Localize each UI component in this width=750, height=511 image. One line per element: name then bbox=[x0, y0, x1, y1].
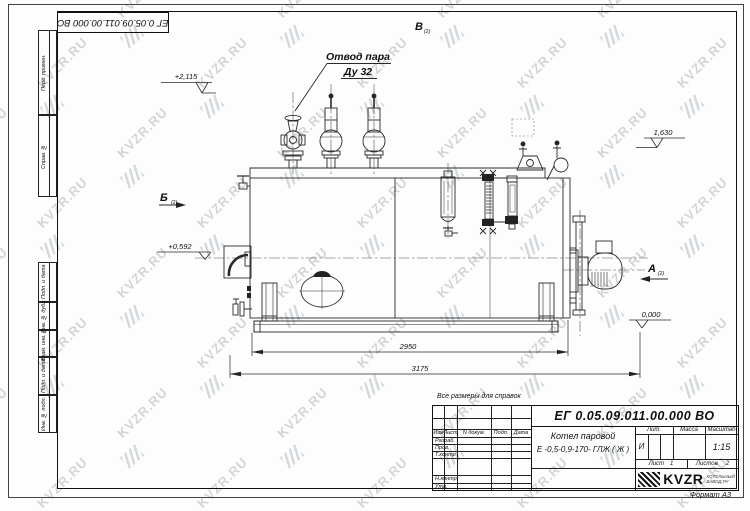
tb-header-date: Дата bbox=[511, 429, 531, 437]
tb-line bbox=[531, 468, 635, 469]
stamp-doc-number: ЕГ 0.05.09.011.00.000 ВО bbox=[57, 17, 168, 28]
tb-line bbox=[433, 418, 531, 419]
top-left-stamp: ЕГ 0.05.09.011.00.000 ВО bbox=[57, 12, 169, 33]
tb-sheets-value: 2 bbox=[726, 461, 729, 467]
margin-cell-podp-data-1: Подп. и дата bbox=[38, 262, 57, 302]
company-logo: KVZR КОТЕЛЬНЫЙ ЗАВОД.РУ bbox=[635, 468, 738, 490]
kvzr-hatch-icon bbox=[638, 472, 660, 487]
margin-label: Инв. № подл. bbox=[39, 396, 50, 432]
margin-label: Взам. инв. № bbox=[39, 331, 50, 356]
tb-lit-header: Лит. bbox=[635, 426, 673, 434]
tb-sheets: Листов 2 bbox=[687, 459, 738, 468]
tb-line bbox=[648, 434, 649, 459]
margin-label: Справ. № bbox=[39, 116, 50, 196]
tb-scale-value: 1:15 bbox=[705, 434, 738, 459]
tb-line bbox=[457, 406, 458, 490]
tb-row-ncontrol: Н.контр bbox=[433, 475, 457, 483]
tb-mass-header: Масса bbox=[673, 426, 705, 434]
margin-label: Подп. и дата bbox=[39, 358, 50, 394]
tb-header-sign: Подп. bbox=[491, 429, 511, 437]
margin-cell-perv-primen: Перв. примен. bbox=[38, 30, 57, 115]
kvzr-logo-subtext-line2: ЗАВОД.РУ bbox=[706, 479, 734, 484]
tb-sheet-value: 1 bbox=[670, 461, 673, 467]
tb-sheets-label: Листов bbox=[696, 461, 718, 467]
margin-cell-inv-podl: Инв. № подл. bbox=[38, 395, 57, 433]
tb-line bbox=[491, 406, 492, 490]
reference-note: Все размеры для справок bbox=[437, 393, 521, 400]
tb-row-developed: Разраб. bbox=[433, 437, 457, 444]
kvzr-logo-subtext: КОТЕЛЬНЫЙ ЗАВОД.РУ bbox=[706, 474, 734, 484]
margin-label: Подп. и дата bbox=[39, 263, 50, 301]
tb-header-list: Лист bbox=[444, 429, 457, 437]
tb-line bbox=[511, 406, 512, 490]
tb-row-approved: Утв. bbox=[433, 483, 457, 490]
tb-scale-header: Масштаб bbox=[705, 426, 738, 434]
tb-header-izm: Изм bbox=[433, 429, 444, 437]
tb-sheet: Лист 1 bbox=[635, 459, 687, 468]
tb-row-tcontrol: Т.контр bbox=[433, 451, 457, 458]
title-block: Изм Лист N докум. Подп. Дата Разраб. Про… bbox=[432, 405, 739, 491]
margin-cell-podp-data-2: Подп. и дата bbox=[38, 357, 57, 395]
format-label: Формат А3 bbox=[690, 490, 731, 499]
tb-row-checked: Пров. bbox=[433, 444, 457, 451]
margin-cell-vzam-inv: Взам. инв. № bbox=[38, 330, 57, 357]
margin-label: Перв. примен. bbox=[39, 31, 50, 114]
tb-lit-value: И bbox=[635, 434, 648, 459]
kvzr-logo-text: KVZR bbox=[663, 471, 703, 487]
tb-header-doc: N докум. bbox=[457, 429, 491, 437]
tb-sheet-label: Лист bbox=[649, 461, 664, 467]
tb-doc-number: ЕГ 0.05.09.011.00.000 ВО bbox=[531, 406, 738, 426]
tb-line bbox=[660, 434, 661, 459]
margin-cell-sprav-no: Справ. № bbox=[38, 115, 57, 197]
tb-product-type: Е -0,5-0,9-170- ГЛЖ ( Ж ) bbox=[531, 442, 635, 456]
tb-line bbox=[433, 458, 531, 459]
